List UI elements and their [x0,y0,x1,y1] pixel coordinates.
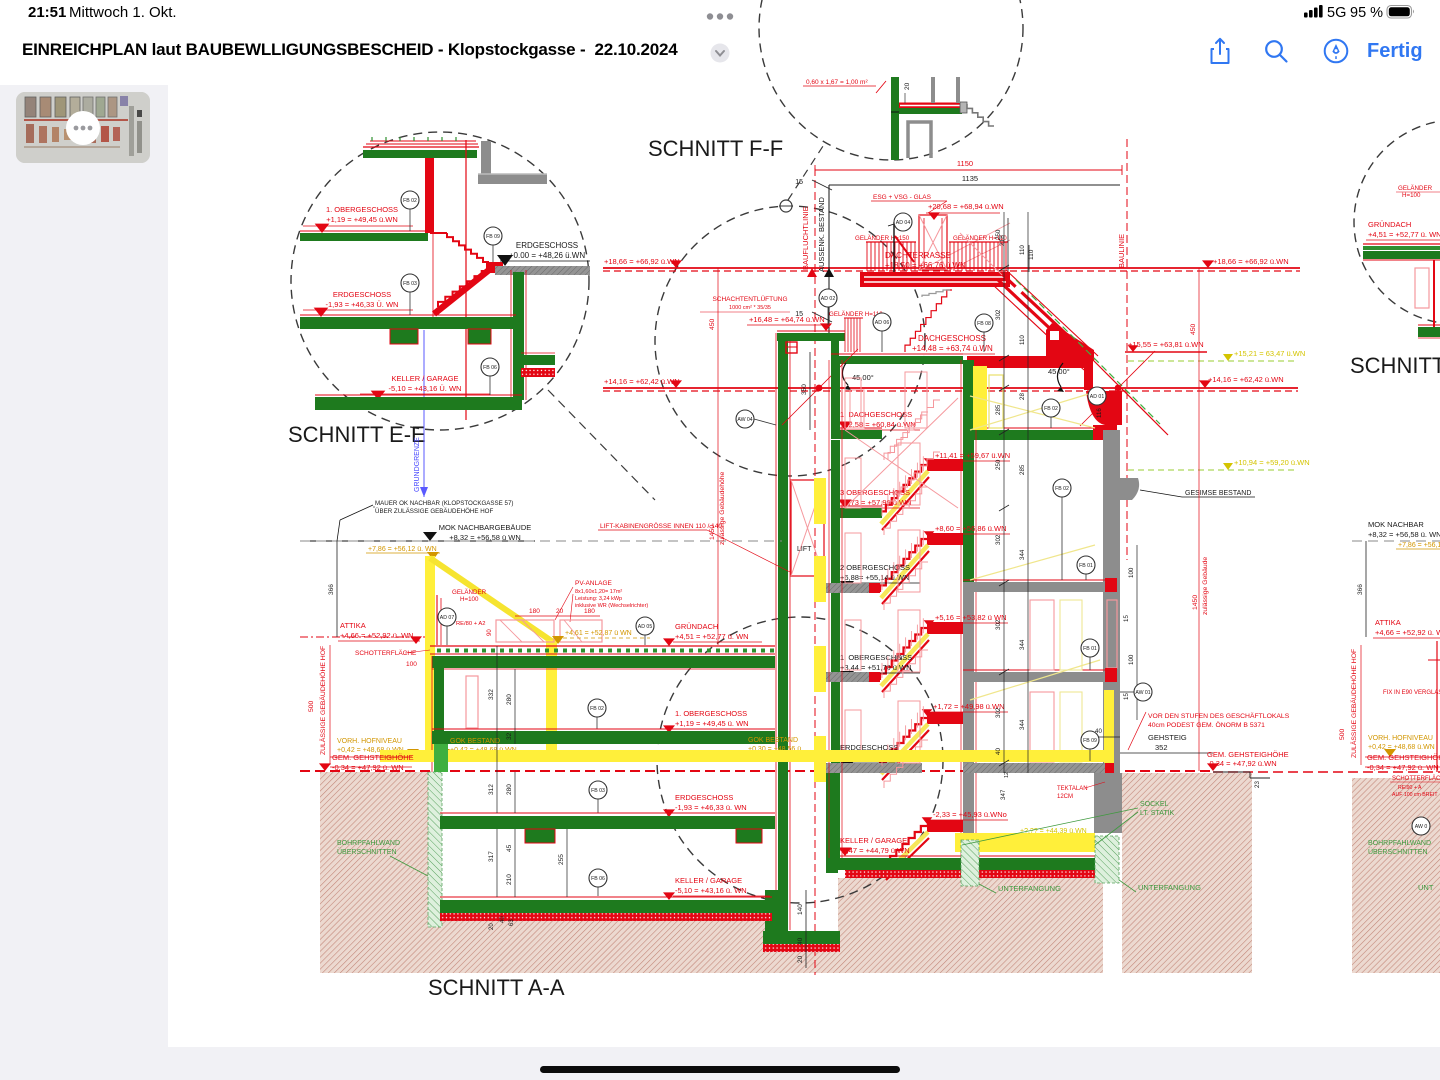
svg-text:GEHSTEIG: GEHSTEIG [1148,733,1187,742]
svg-text:20: 20 [904,82,911,90]
svg-text:+3,44 = +51,70 ü.WN: +3,44 = +51,70 ü.WN [840,663,912,672]
svg-text:zulässige Gebäudehöhe: zulässige Gebäudehöhe [719,471,726,545]
svg-text:+18,50 = +66,76 ü WN: +18,50 = +66,76 ü WN [885,261,966,270]
svg-text:FB 08: FB 08 [977,321,991,327]
svg-text:ATTIKA: ATTIKA [1375,618,1401,627]
svg-text:+0.00 = +48,26 ü.WN: +0.00 = +48,26 ü.WN [509,251,585,260]
svg-text:280: 280 [506,784,513,795]
svg-text:GEM. GEHSTEIGHÖHE: GEM. GEHSTEIGHÖHE [1207,750,1289,759]
svg-text:zulässige Gebäude: zulässige Gebäude [1202,557,1209,615]
svg-text:AW 0: AW 0 [1415,824,1428,830]
svg-text:40cm PODEST GEM. ÖNORM B 5371: 40cm PODEST GEM. ÖNORM B 5371 [1148,721,1265,729]
svg-text:GESIMSE BESTAND: GESIMSE BESTAND [1185,490,1251,497]
svg-text:REI90 + A: REI90 + A [1398,785,1422,791]
svg-text:FB 09: FB 09 [486,234,500,240]
svg-text:+7,86 = +56,12 ü. WN: +7,86 = +56,12 ü. WN [368,546,437,553]
svg-text:GOK BESTAND: GOK BESTAND [450,738,500,745]
svg-text:450: 450 [1190,323,1197,335]
svg-text:UNT: UNT [1418,883,1434,892]
svg-text:+?,?? = +44,39 ü.WN: +?,?? = +44,39 ü.WN [1020,828,1087,835]
svg-text:AW 01: AW 01 [1135,690,1150,696]
svg-text:TEKTALAN: TEKTALAN [1057,786,1088,792]
svg-text:+14,48 = +63,74 ü.WN: +14,48 = +63,74 ü.WN [912,344,993,353]
svg-text:UNTERFANGUNG: UNTERFANGUNG [998,884,1061,893]
svg-text:180: 180 [584,608,595,615]
svg-text:FIX IN E90 VERGLASU: FIX IN E90 VERGLASU [1383,690,1440,696]
svg-text:344: 344 [1019,719,1026,730]
svg-text:ERDGESCHOSS: ERDGESCHOSS [516,241,578,250]
svg-text:FB 02: FB 02 [1044,406,1058,412]
svg-text:1. OBERGESCHOSS: 1. OBERGESCHOSS [675,709,747,718]
svg-text:AD 01: AD 01 [1090,394,1105,400]
svg-text:+16,48 = +64,74 ü.WN: +16,48 = +64,74 ü.WN [749,315,825,324]
svg-text:450: 450 [709,318,716,330]
svg-text:180: 180 [529,608,540,615]
svg-text:366: 366 [328,584,335,595]
svg-text:Leistung: 3,24 kWp: Leistung: 3,24 kWp [575,596,622,602]
svg-text:GRÜNDACH: GRÜNDACH [675,622,718,631]
svg-text:312: 312 [488,784,495,795]
svg-text:285: 285 [995,404,1002,415]
svg-text:H=100: H=100 [1402,192,1421,199]
svg-text:317: 317 [488,851,495,862]
svg-text:SCHOTTERFLÄCH: SCHOTTERFLÄCH [1392,775,1440,782]
svg-text:AUF 100 cm BREIT: AUF 100 cm BREIT [1392,792,1438,798]
svg-text:20: 20 [489,923,495,930]
svg-text:AD 06: AD 06 [875,320,890,326]
svg-text:-1,93 = +46,33 Ü. WN: -1,93 = +46,33 Ü. WN [326,300,399,309]
svg-text:+14,16 = +62,42 ü.WN: +14,16 = +62,42 ü.WN [1208,375,1284,384]
svg-text:FB 02: FB 02 [1055,486,1069,492]
svg-text:UNTERFANGUNG: UNTERFANGUNG [1138,883,1201,892]
svg-text:302: 302 [995,619,1002,630]
svg-text:H=100: H=100 [460,596,479,603]
svg-text:MOK NACHBAR: MOK NACHBAR [1368,520,1424,529]
svg-text:VOR DEN STUFEN DES GESCHÄFTLOK: VOR DEN STUFEN DES GESCHÄFTLOKALS [1148,712,1290,720]
svg-text:AD 07: AD 07 [440,615,455,621]
svg-text:ERDGESCHOSS: ERDGESCHOSS [675,793,733,802]
svg-text:140: 140 [797,904,804,915]
svg-text:+4,51 = +52,77 ü. WN: +4,51 = +52,77 ü. WN [1368,230,1440,239]
svg-text:SCHNITT: SCHNITT [1350,353,1440,378]
svg-text:1150: 1150 [957,159,973,168]
svg-text:FB 02: FB 02 [590,706,604,712]
svg-text:352: 352 [1155,743,1168,752]
svg-text:110: 110 [1019,335,1026,345]
svg-text:15: 15 [795,179,803,186]
svg-text:1. OBERGESCHOSS: 1. OBERGESCHOSS [326,205,398,214]
svg-text:-3,47 = +44,79 ü.WN: -3,47 = +44,79 ü.WN [840,846,910,855]
svg-text:VORH. HOFNIVEAU: VORH. HOFNIVEAU [1368,735,1433,742]
svg-text:VORH. HOFNIVEAU: VORH. HOFNIVEAU [337,738,402,745]
svg-text:344: 344 [1019,639,1026,650]
svg-text:FB 01: FB 01 [1083,646,1097,652]
svg-text:+4,51 = +52,77 ü. WN: +4,51 = +52,77 ü. WN [675,632,749,641]
svg-text:40: 40 [500,916,506,923]
svg-text:FB 03: FB 03 [591,788,605,794]
svg-text:FB 06: FB 06 [591,876,605,882]
svg-text:PV-ANLAGE: PV-ANLAGE [575,580,613,587]
svg-text:-5,10 = +43,16 ü. WN: -5,10 = +43,16 ü. WN [675,886,747,895]
svg-text:GRÜNDACH: GRÜNDACH [1368,220,1411,229]
svg-text:SCHACHTENTLÜFTUNG: SCHACHTENTLÜFTUNG [712,295,787,303]
svg-text:GOK BESTAND: GOK BESTAND [748,737,798,744]
svg-text:20: 20 [556,608,564,615]
svg-text:KELLER / GARAGE: KELLER / GARAGE [675,876,742,885]
svg-text:12CM: 12CM [1057,794,1073,800]
svg-text:FB 03: FB 03 [403,281,417,287]
svg-text:ÜBERSCHNITTEN: ÜBERSCHNITTEN [1368,848,1428,856]
svg-text:100: 100 [1128,654,1135,665]
svg-text:+1,19 = +49,45 ü.WN: +1,19 = +49,45 ü.WN [326,215,398,224]
svg-text:KELLER / GARAGE: KELLER / GARAGE [391,374,458,383]
svg-text:28: 28 [1019,393,1026,400]
svg-text:+6,88= +55,14 ü.WN: +6,88= +55,14 ü.WN [840,573,909,582]
svg-text:SCHNITT E-E: SCHNITT E-E [288,422,426,447]
svg-text:+18,66 = +66,92 ü.WN: +18,66 = +66,92 ü.WN [604,257,680,266]
svg-text:15: 15 [1123,615,1130,622]
svg-text:BAUFLUCHTLINIE: BAUFLUCHTLINIE [801,206,810,270]
svg-text:MAUER OK NACHBAR (KLOPSTOCKGAS: MAUER OK NACHBAR (KLOPSTOCKGASSE 57) [375,500,513,507]
svg-text:BAULINIE: BAULINIE [1117,234,1126,268]
svg-text:20: 20 [797,955,804,963]
svg-text:1450: 1450 [1192,595,1199,610]
svg-text:GRUNDGRENZE: GRUNDGRENZE [414,437,421,492]
svg-text:+8,60 = +56,86 ü.WN: +8,60 = +56,86 ü.WN [935,524,1007,533]
svg-text:ÜBERSCHNITTEN: ÜBERSCHNITTEN [337,848,397,856]
svg-text:ZULÄSSIGE GEBÄUDEHÖHE HOF: ZULÄSSIGE GEBÄUDEHÖHE HOF [319,646,327,755]
svg-text:FB 01: FB 01 [1079,563,1093,569]
svg-text:+14,16 = +62,42 ü.WN: +14,16 = +62,42 ü.WN [604,377,680,386]
svg-text:BOHRPFAHLWAND: BOHRPFAHLWAND [337,840,400,847]
svg-text:40: 40 [995,748,1002,755]
svg-text:+11,41 = +59,67 ü.WN: +11,41 = +59,67 ü.WN [935,451,1010,460]
svg-text:FB 09: FB 09 [1083,738,1097,744]
svg-text:LIFT: LIFT [797,546,812,553]
svg-text:SCHNITT F-F: SCHNITT F-F [648,136,783,161]
svg-text:ESG + VSG - GLAS: ESG + VSG - GLAS [873,194,932,201]
svg-text:100: 100 [1128,567,1135,578]
svg-text:GELÄNDER: GELÄNDER [452,589,487,596]
svg-text:ATTIKA: ATTIKA [340,621,366,630]
svg-text:302: 302 [995,534,1002,545]
svg-text:500: 500 [1339,728,1346,740]
svg-text:AW 04: AW 04 [737,417,752,423]
svg-text:+4,61 = +52,87 ü WN: +4,61 = +52,87 ü WN [565,630,632,637]
svg-text:AD 02: AD 02 [821,296,836,302]
svg-text:+20,68 = +68,94 ü.WN: +20,68 = +68,94 ü.WN [928,202,1004,211]
svg-text:302: 302 [995,309,1002,320]
svg-text:63: 63 [509,919,515,926]
svg-text:+15,21 = 63,47 ü.WN: +15,21 = 63,47 ü.WN [1234,349,1305,358]
svg-text:-0,34 = +47,92 ü. WN: -0,34 = +47,92 ü. WN [1367,763,1439,772]
svg-text:+4,66 = +52,92 ü. WN: +4,66 = +52,92 ü. WN [1375,628,1440,637]
svg-text:1000 cm² * 35/35: 1000 cm² * 35/35 [729,305,771,311]
svg-text:285: 285 [1019,464,1026,475]
svg-text:1. DACHGESCHOSS: 1. DACHGESCHOSS [840,410,912,419]
svg-text:SCHNITT A-A: SCHNITT A-A [428,975,565,1000]
svg-text:23: 23 [1254,781,1261,788]
svg-text:250: 250 [995,229,1002,240]
svg-text:+1,19 = +49,45 ü. WN: +1,19 = +49,45 ü. WN [675,719,749,728]
svg-text:210: 210 [506,874,513,885]
svg-text:1450: 1450 [709,525,716,540]
svg-text:110: 110 [1019,245,1026,255]
svg-text:500: 500 [308,700,315,712]
svg-text:+15,55 = +63,81 ü.WN: +15,55 = +63,81 ü.WN [1128,340,1204,349]
svg-text:SCHOTTERFLÄCHE: SCHOTTERFLÄCHE [355,649,417,657]
svg-text:+1,72 = +49,98 ü.WN: +1,72 = +49,98 ü.WN [933,702,1005,711]
svg-text:-0,34 = +47,92 ü. WN: -0,34 = +47,92 ü. WN [332,763,404,772]
svg-text:-1,93 = +46,33 ü. WN: -1,93 = +46,33 ü. WN [675,803,747,812]
svg-text:40: 40 [797,937,804,945]
svg-text:8x1,60x1,20= 17m²: 8x1,60x1,20= 17m² [575,589,622,595]
svg-text:ZULÄSSIGE GEBÄUDEHÖHE HOF: ZULÄSSIGE GEBÄUDEHÖHE HOF [1350,649,1358,758]
svg-text:366: 366 [1357,584,1364,595]
svg-text:302: 302 [995,707,1002,718]
svg-text:250: 250 [995,459,1002,470]
svg-text:DACHTERRASSE: DACHTERRASSE [885,251,951,260]
svg-text:100: 100 [406,661,417,668]
svg-text:12: 12 [1004,772,1010,778]
svg-text:0,60 x 1,67 = 1,00 m²: 0,60 x 1,67 = 1,00 m² [806,79,868,86]
svg-text:LT. STATIK: LT. STATIK [1140,810,1175,817]
svg-text:116: 116 [1096,408,1103,418]
svg-text:1. OBERGESCHOSS: 1. OBERGESCHOSS [840,653,912,662]
svg-text:GELÄNDER H=150: GELÄNDER H=150 [855,235,910,242]
svg-text:347: 347 [1000,789,1007,800]
svg-text:SOCKEL: SOCKEL [1140,801,1169,808]
svg-text:110: 110 [1028,249,1035,260]
svg-text:+10,94 = +59,20 ü.WN: +10,94 = +59,20 ü.WN [1234,458,1310,467]
svg-text:332: 332 [488,689,495,700]
svg-text:DACHGESCHOSS: DACHGESCHOSS [918,334,986,343]
svg-text:+7,86 = +56,1: +7,86 = +56,1 [1398,542,1440,549]
svg-text:BOHRPFAHLWAND: BOHRPFAHLWAND [1368,840,1431,847]
svg-text:15: 15 [1123,693,1130,700]
svg-text:FB 06: FB 06 [483,365,497,371]
svg-text:ÜBER ZULÄSSIGE GEBÄUDEHÖHE HOF: ÜBER ZULÄSSIGE GEBÄUDEHÖHE HOF [375,508,493,515]
svg-text:RE/80 + A2: RE/80 + A2 [456,621,486,627]
svg-text:32: 32 [506,732,513,740]
svg-text:1135: 1135 [962,174,978,183]
svg-text:+4,66 = +52,92 ü. WN: +4,66 = +52,92 ü. WN [340,631,414,640]
svg-text:-2,33 = +45,93 ü.WNo: -2,33 = +45,93 ü.WNo [933,810,1007,819]
svg-text:45: 45 [506,844,513,852]
svg-text:LIFT-KABINENGRÖSSE INNEN 110 /: LIFT-KABINENGRÖSSE INNEN 110 / 140 [600,522,722,530]
svg-text:280: 280 [506,694,513,705]
svg-text:+8,32 = +56,58 ü. WN: +8,32 = +56,58 ü. WN [1368,530,1440,539]
svg-text:90: 90 [487,629,493,636]
svg-text:GEM. GEHSTEIGHÖH: GEM. GEHSTEIGHÖH [1367,753,1440,762]
svg-text:FB 02: FB 02 [403,198,417,204]
svg-text:ERDGESCHOSS: ERDGESCHOSS [333,290,391,299]
svg-text:GEM. GEHSTEIGHÖHE: GEM. GEHSTEIGHÖHE [332,753,414,762]
svg-text:350: 350 [801,384,808,395]
svg-text:MOK NACHBARGEBÄUDE: MOK NACHBARGEBÄUDE [439,523,532,532]
svg-text:+0,42 = +48,68 ü.WN: +0,42 = +48,68 ü.WN [1368,744,1435,751]
svg-text:344: 344 [1019,549,1026,560]
svg-text:AD 04: AD 04 [896,220,911,226]
svg-text:+18,66 = +66,92 ü.WN: +18,66 = +66,92 ü.WN [1213,257,1289,266]
svg-text:KELLER / GARAGE: KELLER / GARAGE [840,836,907,845]
svg-text:AUSSENK. BESTAND: AUSSENK. BESTAND [817,197,826,272]
svg-text:GELÄNDER: GELÄNDER [1398,185,1433,192]
svg-text:-5,10 = +43,16 Ü. WN: -5,10 = +43,16 Ü. WN [389,384,462,393]
svg-text:255: 255 [558,854,565,865]
svg-text:AD 05: AD 05 [638,624,653,630]
